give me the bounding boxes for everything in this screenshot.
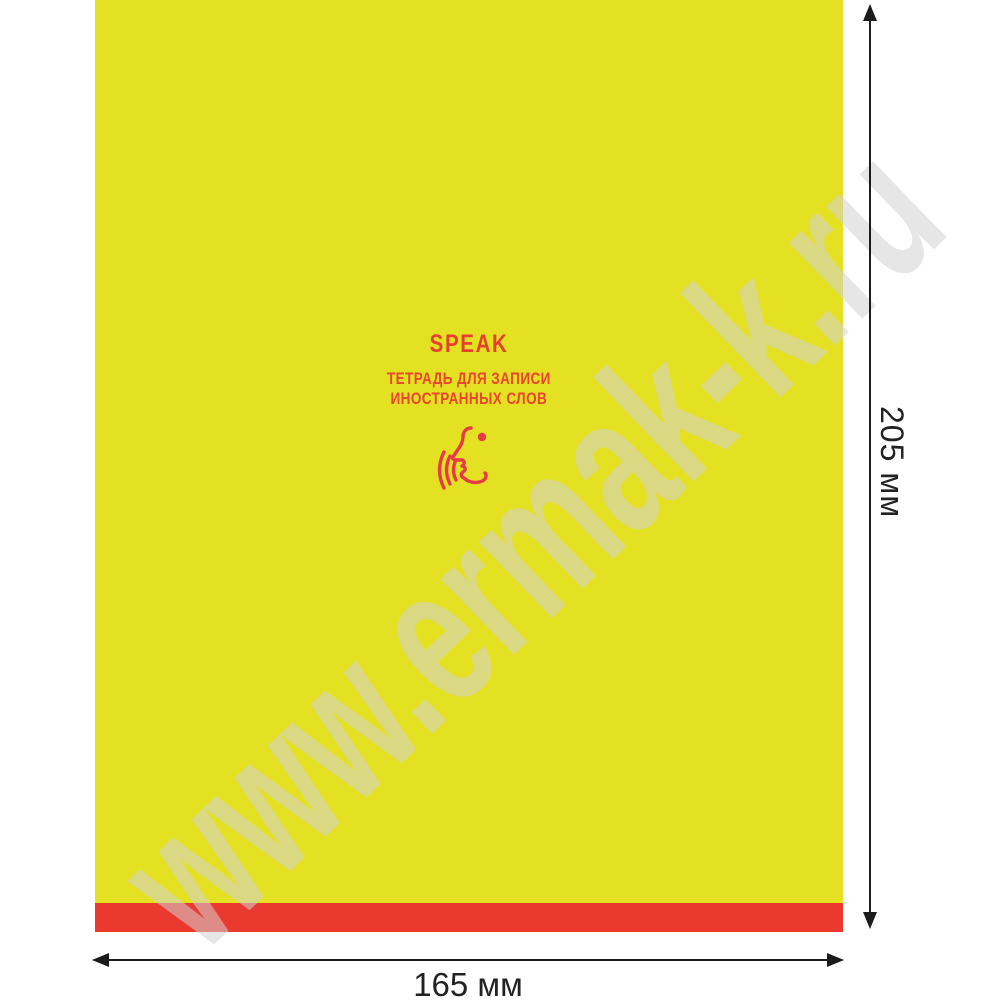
sound-wave-inner-icon [454, 460, 457, 480]
cover-red-stripe [95, 903, 843, 932]
cover-subtitle-line1: ТЕТРАДЬ ДЛЯ ЗАПИСИ [387, 370, 551, 388]
cover-title: SPEAK [430, 330, 509, 359]
arrow-left-icon [92, 953, 109, 967]
sound-wave-middle-icon [447, 456, 451, 484]
cover-title-row: SPEAK [95, 330, 843, 359]
notebook-cover: SPEAK ТЕТРАДЬ ДЛЯ ЗАПИСИ ИНОСТРАННЫХ СЛО… [95, 0, 843, 932]
speaking-face-icon [435, 424, 515, 509]
cover-front-yellow: SPEAK ТЕТРАДЬ ДЛЯ ЗАПИСИ ИНОСТРАННЫХ СЛО… [95, 0, 843, 903]
cover-subtitle: ТЕТРАДЬ ДЛЯ ЗАПИСИ ИНОСТРАННЫХ СЛОВ [387, 370, 551, 409]
cover-subtitle-line2: ИНОСТРАННЫХ СЛОВ [391, 390, 548, 408]
sound-wave-outer-icon [440, 452, 445, 488]
arrow-right-icon [827, 953, 844, 967]
product-photo: SPEAK ТЕТРАДЬ ДЛЯ ЗАПИСИ ИНОСТРАННЫХ СЛО… [0, 0, 1000, 1000]
width-dimension-label: 165 мм [368, 966, 568, 1000]
cover-subtitle-block: ТЕТРАДЬ ДЛЯ ЗАПИСИ ИНОСТРАННЫХ СЛОВ [95, 370, 843, 409]
arrow-up-icon [863, 4, 877, 21]
height-dimension-line [869, 8, 871, 920]
arrow-down-icon [863, 912, 877, 929]
height-dimension-label: 205 мм [873, 406, 910, 518]
eye-dot [478, 433, 486, 441]
width-dimension-line [94, 959, 842, 961]
